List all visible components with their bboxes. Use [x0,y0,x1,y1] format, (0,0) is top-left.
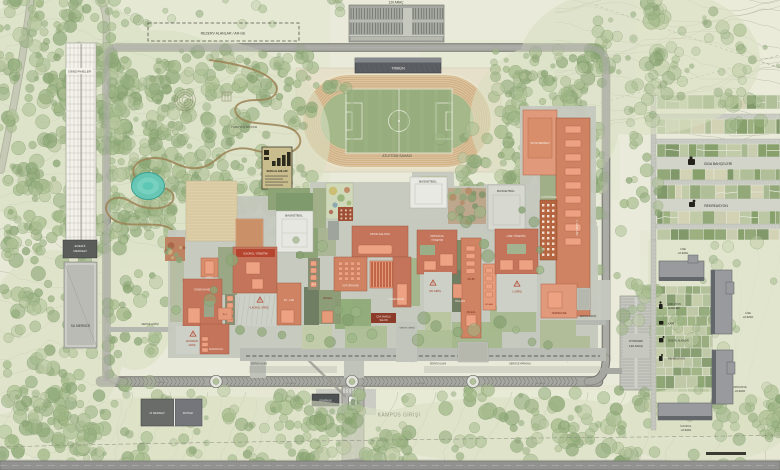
svg-text:GÜNEŞ PANELLERİ: GÜNEŞ PANELLERİ [68,71,91,74]
svg-text:ORTAOKUL: ORTAOKUL [430,234,445,238]
svg-text:L-SINIFLAR: L-SINIFLAR [575,220,579,235]
svg-text:OD-LAB1: OD-LAB1 [455,300,466,303]
svg-text:LOJMAN: LOJMAN [743,315,754,319]
svg-text:BASKETBOL: BASKETBOL [285,214,303,218]
svg-text:B2-EAL: B2-EAL [324,296,333,300]
svg-text:LOJMAN: LOJMAN [735,389,746,393]
svg-text:MERKEZİ: MERKEZİ [73,248,87,253]
svg-text:MUTFAK: MUTFAK [183,411,194,415]
svg-text:ATLETİZM SAHASI: ATLETİZM SAHASI [382,153,412,158]
svg-text:LOJMAN: LOJMAN [681,428,692,432]
svg-text:OD-EAL: OD-EAL [467,311,477,314]
svg-text:YEMEKHANE: YEMEKHANE [194,288,211,292]
svg-text:SALON: SALON [379,319,387,322]
svg-text:GİRİŞ: GİRİŞ [189,344,196,347]
svg-text:SOSYAL ALANLAR: SOSYAL ALANLAR [668,340,689,343]
svg-text:SU MERKEZİ: SU MERKEZİ [71,323,91,328]
svg-text:SERVICE PARKING: SERVICE PARKING [509,363,531,366]
svg-text:REKREASYON: REKREASYON [704,204,728,208]
svg-text:120 ARAÇ: 120 ARAÇ [389,1,405,5]
svg-text:LOJMAN: LOJMAN [678,251,689,255]
svg-text:SPOR SALONU: SPOR SALONU [370,232,390,236]
svg-text:KÜTÜPHANE: KÜTÜPHANE [541,196,557,199]
svg-text:REZERV ALANLAR / AR-GE: REZERV ALANLAR / AR-GE [201,32,246,36]
svg-text:SERVİS GİRİŞİ: SERVİS GİRİŞİ [141,323,159,326]
svg-text:GIDA BAHÇELERİ: GIDA BAHÇELERİ [704,161,732,166]
svg-text:120 ARAÇ: 120 ARAÇ [629,344,644,348]
svg-text:ORTAOKUL: ORTAOKUL [733,385,748,389]
svg-text:SPOR MERKEZİ: SPOR MERKEZİ [531,142,550,145]
svg-text:SERVİS ALANI: SERVİS ALANI [251,363,268,366]
svg-text:ENERJİ: ENERJİ [75,243,86,248]
svg-text:OTOPARK: OTOPARK [629,339,643,343]
svg-text:ALANLARI: ALANLARI [668,307,680,310]
svg-text:YEMEKHANE: YEMEKHANE [388,297,405,301]
svg-text:BASKETBOL: BASKETBOL [419,180,437,184]
svg-text:SERA ALANLARI: SERA ALANLARI [267,169,288,173]
svg-text:REKREASYON: REKREASYON [668,358,685,361]
svg-text:SERVİS ALANI: SERVİS ALANI [430,363,447,366]
svg-text:SERVİS GİRİŞİ: SERVİS GİRİŞİ [399,327,415,330]
svg-text:ANAOKULU: ANAOKULU [209,347,223,351]
svg-text:KÜTÜPHANE: KÜTÜPHANE [342,284,359,288]
svg-text:ANASINIFI: ANASINIFI [186,340,199,343]
svg-text:ÇOK OYUN: ÇOK OYUN [668,303,681,306]
svg-text:OD-EAL: OD-EAL [485,303,494,306]
svg-text:KAFE: KAFE [668,323,675,326]
svg-text:TRİBÜN: TRİBÜN [391,66,405,71]
svg-text:BASKETBOL: BASKETBOL [497,189,515,193]
svg-text:OD-B1: OD-B1 [467,278,475,281]
svg-text:SERVİS GİRİŞİ: SERVİS GİRİŞİ [580,315,597,318]
svg-text:YÜRÜYÜŞ ROTASI: YÜRÜYÜŞ ROTASI [231,125,258,129]
